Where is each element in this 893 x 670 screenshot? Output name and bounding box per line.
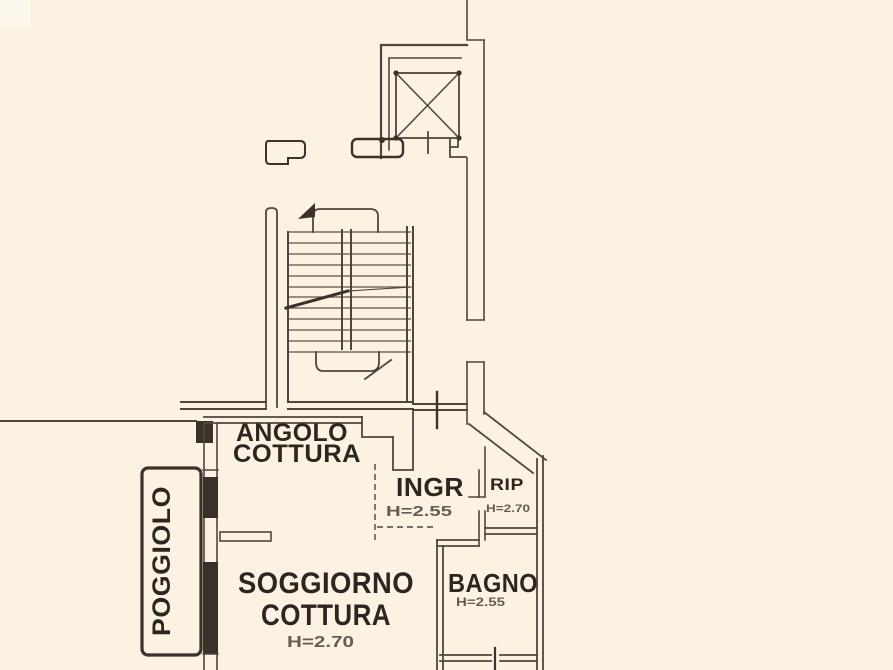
scan-artifact — [0, 0, 30, 26]
plan-background — [0, 0, 893, 670]
label-angolo-cottura-line2: COTTURA — [233, 440, 361, 468]
label-poggiolo: POGGIOLO — [148, 486, 176, 636]
label-ingresso: INGR — [396, 472, 464, 502]
floor-plan: ANGOLO COTTURA INGR H=2.55 RIP H=2.70 SO… — [0, 0, 893, 670]
label-bagno: BAGNO — [448, 568, 538, 598]
label-soggiorno-height: H=2.70 — [287, 634, 354, 651]
label-soggiorno-line1: SOGGIORNO — [238, 567, 414, 600]
floor-plan-drawing: ANGOLO COTTURA INGR H=2.55 RIP H=2.70 SO… — [0, 0, 893, 670]
label-bagno-height: H=2.55 — [456, 595, 505, 609]
label-soggiorno-line2: COTTURA — [261, 599, 391, 632]
label-ripostiglio: RIP — [490, 475, 524, 494]
label-ingresso-height: H=2.55 — [386, 503, 452, 520]
label-ripostiglio-height: H=2.70 — [486, 503, 530, 515]
